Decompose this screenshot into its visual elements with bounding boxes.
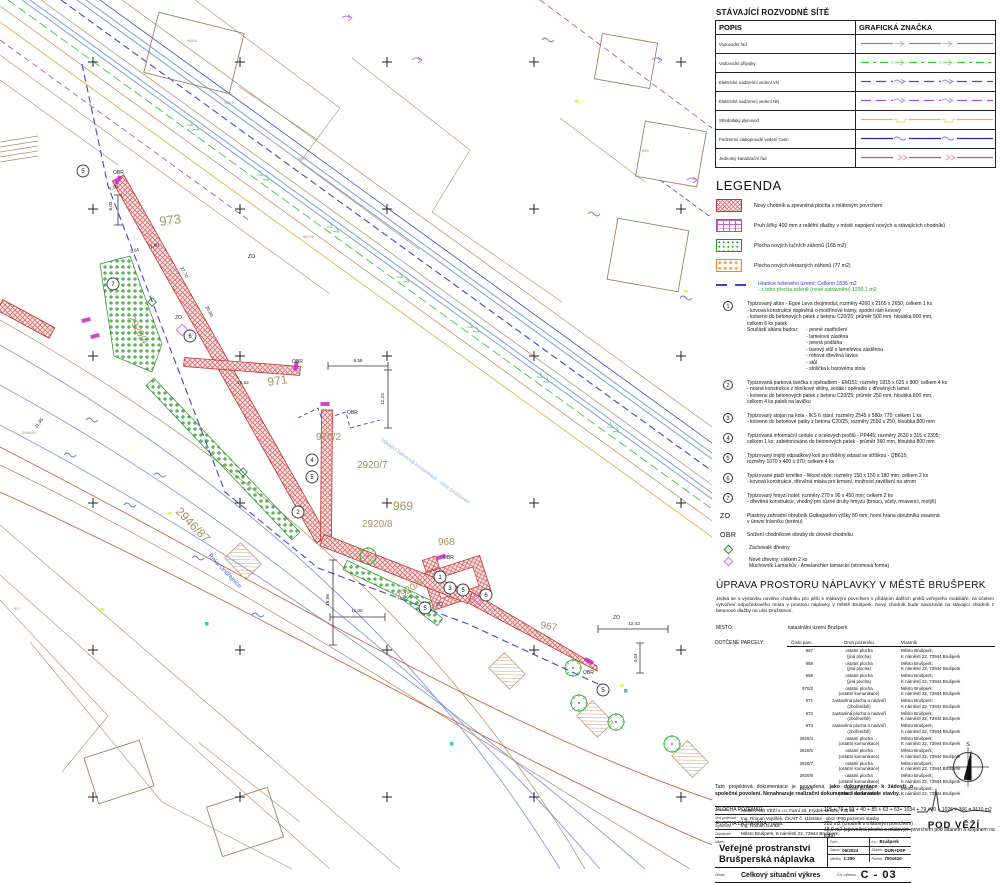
parcels-header: Číslo parc. Druh pozemku Vlastník <box>787 640 995 647</box>
lamp-mark <box>620 684 624 687</box>
legend-items: Nový chodník a zpevněná plocha s mlátový… <box>715 199 997 272</box>
misto-row: MÍSTO: katastrální území Brušperk <box>716 625 997 631</box>
parcel-line <box>195 0 340 108</box>
obr-code: OBR <box>720 532 742 539</box>
map-label: 2920/8 <box>362 519 393 530</box>
grid-cross-icon <box>88 57 98 67</box>
tower-skyline-icon <box>915 788 993 814</box>
grid-cross-icon <box>88 645 98 655</box>
titleblock-field: Měřítko: 1:250 <box>828 855 870 862</box>
titleblock-row: Ved. projektant: Ing. Roman Vojtíšek, ČK… <box>715 815 911 823</box>
network-row: Elektrické nadzemní vedení VN <box>716 73 996 92</box>
tree-icon <box>564 659 582 677</box>
field-value: 700x610 <box>884 856 901 861</box>
map-label: 973 <box>158 211 182 229</box>
parcel-row: 970/2 ostatní plocha (ostatní komunikace… <box>787 686 995 697</box>
title-content-row: Obsah: Celkový situační výkres Čís. výkr… <box>715 868 911 883</box>
parcel-owner: Město Brušperk; K náměstí 22, 73944 Bruš… <box>901 711 995 722</box>
map-item-marker: 4 <box>306 454 318 466</box>
grid-cross-icon <box>88 792 98 802</box>
parcel-type: ostatní plocha (ostatní komunikace) <box>817 686 901 697</box>
map-label: ZO <box>175 315 182 321</box>
dimension-label: 20,00 <box>204 305 214 318</box>
numbered-legend-item: 3 Typizovaný stojan na kola - IKS 6 stán… <box>715 413 997 426</box>
parcel-line <box>432 150 470 212</box>
legend-panel: STÁVAJÍCÍ ROZVODNÉ SÍTĚ POPIS GRAFICKÁ Z… <box>712 0 1000 869</box>
tactile-strip <box>81 317 91 323</box>
tree-center <box>615 721 617 723</box>
stairs <box>672 741 709 778</box>
project-description: Jedná se o výstavbu nového chodníku pro … <box>716 597 994 616</box>
parcel-number: 2920/4 <box>787 736 817 747</box>
field-label: Měřítko: <box>830 857 842 861</box>
sublist-line: - stolička k barovému stolu <box>806 366 883 373</box>
map-label: OBR <box>292 359 303 365</box>
kept-tree-diamond-icon <box>724 544 734 554</box>
project-name-2: Brušperská náplavka <box>719 855 827 866</box>
item-text-line: rozměry 1070 x 400 x 970; celkem 4 ks <box>747 459 983 466</box>
titleblock-field: Datum: 05/2024 <box>828 847 870 854</box>
new-path-areas <box>0 175 597 671</box>
dimension-label: 6,03 <box>108 201 113 210</box>
network-label: Vodovodní přípojky <box>716 54 856 73</box>
network-label: Vodovodní řad <box>716 35 856 54</box>
grid-cross-icon <box>235 351 245 361</box>
parcel-row: 967 ostatní plocha (jiná plocha) Město B… <box>787 648 995 659</box>
field-value: 1:250 <box>844 856 855 861</box>
map-item-marker: 5 <box>597 684 609 696</box>
lamp-mark <box>168 512 172 515</box>
parcel-number: 2920/7 <box>787 761 817 772</box>
parcel-line <box>0 575 330 869</box>
network-line-sample-icon <box>856 130 996 149</box>
hydrant-mark <box>624 689 628 693</box>
item-number-badge: 1 <box>723 301 733 311</box>
dimension-label: 3,54 <box>130 247 140 254</box>
legend-boundary-item: Hranice řešeného území; Celkem 1836 m2 -… <box>716 281 997 293</box>
document-note: Tato projektová dokumentace je provedená… <box>715 784 913 798</box>
network-line-sample-icon <box>856 149 996 168</box>
titleblock-value: Ing. Roman Vojtíšek, ČKAIT č. 1104364 - … <box>741 816 879 821</box>
zo-text-2: v úrovni trávníku (terénu) <box>747 519 983 526</box>
sublist-label: Součástí altánu budou: <box>747 327 798 373</box>
zo-item: ZO Plastový zahradní obrubník Guttagarde… <box>715 513 997 526</box>
grid-cross-icon <box>529 351 539 361</box>
map-label: 985/3 <box>224 100 235 105</box>
power-arrow <box>342 15 352 21</box>
water-squiggle <box>588 212 600 216</box>
map-label: OBR <box>113 170 124 176</box>
field-label: k.ú.: <box>872 840 878 844</box>
legend-item-text: Pruh šířky 400 mm z reliéfní dlažby v mí… <box>754 223 945 229</box>
parcel-owner: Město Brušperk; K náměstí 22, 73944 Bruš… <box>901 673 995 684</box>
titleblock-field: k.ú.: Brušperk <box>870 838 912 845</box>
parcels-col1: Číslo parc. <box>787 640 817 645</box>
networks-table: POPIS GRAFICKÁ ZNAČKA Vodovodní řad Vodo… <box>715 20 996 168</box>
titleblock-field-row: Datum: 05/2024Stupeň: DUR+DSP <box>828 847 911 855</box>
water-squiggle <box>124 503 136 507</box>
titleblock-field-row: Měřítko: 1:250Formát: 700x610 <box>828 855 911 862</box>
map-item-marker: 6 <box>480 589 492 601</box>
network-row: Jednotný kanalizační řad <box>716 149 996 168</box>
parcels-col3: Vlastník <box>901 640 995 645</box>
parcel-row: 968 ostatní plocha (jiná plocha) Město B… <box>787 661 995 672</box>
grid-cross-icon <box>382 57 392 67</box>
networks-col-znacka: GRAFICKÁ ZNAČKA <box>856 21 996 35</box>
grid-cross-icon <box>676 57 686 67</box>
item-number-badge: 3 <box>723 413 733 423</box>
grid-cross-icon <box>88 498 98 508</box>
parcel-type: ostatní plocha (ostatní komunikace) <box>817 761 901 772</box>
tactile-strip <box>90 333 100 339</box>
boundary-line-sample <box>716 284 746 286</box>
parcel-type: ostatní plocha (ostatní komunikace) <box>817 736 901 747</box>
tree-center <box>671 743 673 745</box>
grid-cross-icon <box>529 498 539 508</box>
tree-icon <box>607 713 625 731</box>
item-number-badge: 2 <box>723 380 733 390</box>
power-arrow <box>687 177 697 183</box>
map-item-marker: 1 <box>434 571 446 583</box>
network-row: Elektrické nadzemní vedení NN <box>716 92 996 111</box>
dimension-label: 11,00 <box>351 608 363 613</box>
parcel-row: 971 zastavěná plocha a nádvoří (zbořeniš… <box>787 698 995 709</box>
titleblock-value: Město Brušperk, K náměstí 22, 73944 Bruš… <box>741 831 838 836</box>
map-label: 2946/87 <box>173 504 213 545</box>
network-row: Vodovodní přípojky <box>716 54 996 73</box>
tactile-strip <box>321 402 330 406</box>
parcel-owner: Město Brušperk; K náměstí 22, 73944 Bruš… <box>901 686 995 697</box>
networks-col-popis: POPIS <box>716 21 856 35</box>
field-label: Paré: <box>830 840 838 844</box>
map-label: 965 <box>642 148 649 153</box>
grid-cross-icon <box>676 645 686 655</box>
network-label: Elektrické nadzemní vedení NN <box>716 92 856 111</box>
parcel-owner: Město Brušperk; K náměstí 22, 73944 Bruš… <box>901 661 995 672</box>
grid-cross-icon <box>676 498 686 508</box>
item-text-line: celkem 1 ks; zabetonováno do betonových … <box>747 439 983 446</box>
parcels-col2: Druh pozemku <box>817 640 901 645</box>
network-row: Vodovodní řad <box>716 35 996 54</box>
power-arrow <box>652 57 662 63</box>
titleblock-field-row: Paré: k.ú.: Brušperk <box>828 838 911 846</box>
grid-cross-icon <box>676 204 686 214</box>
company-logo: POD VĚŽÍ <box>908 788 1000 831</box>
new-tree-diamond-icon <box>724 556 734 566</box>
parcel-type: ostatní plocha (ostatní komunikace) <box>817 773 901 784</box>
map-item-marker: 2 <box>292 506 304 518</box>
site-boundary-dashed <box>82 64 598 684</box>
item-number-badge: 5 <box>723 453 733 463</box>
numbered-legend-item: 7 Typizovaný hmyzí hotel; rozměry 270 x … <box>715 493 997 506</box>
field-label: Datum: <box>830 848 840 852</box>
network-line-sample-icon <box>856 111 996 130</box>
map-item-marker: 3 <box>444 582 456 594</box>
grid-cross-icon <box>382 498 392 508</box>
obr-item: OBR Snížení chodníkové obruby do úrovně … <box>715 532 997 539</box>
parcel-type: ostatní plocha (ostatní komunikace) <box>817 748 901 759</box>
parcel-owner: Město Brušperk; K náměstí 22, 73944 Bruš… <box>901 648 995 659</box>
map-label: 2946/90 <box>22 430 37 435</box>
map-label: 987/4 <box>303 234 314 239</box>
parcel-number: 972 <box>787 711 817 722</box>
legend-swatch-icon <box>716 239 742 252</box>
building-outline <box>607 218 689 292</box>
map-label: 927 <box>14 606 21 611</box>
map-label: OBR <box>443 555 454 561</box>
network-row: Středotlaký plynovod <box>716 111 996 130</box>
river-lines <box>0 320 712 869</box>
grid-cross-icon <box>676 792 686 802</box>
parcel-line <box>352 58 470 150</box>
drawing-number-label: Čís. výkresu: <box>837 873 857 877</box>
map-item-marker: 5 <box>457 584 469 596</box>
hydrant-mark <box>205 622 209 626</box>
field-label: Stupeň: <box>872 848 883 852</box>
field-value: Brušperk <box>880 839 899 844</box>
dimension-label: 4,04 <box>633 653 638 662</box>
bank-steps <box>0 136 38 162</box>
grid-cross-icon <box>88 351 98 361</box>
new-trees-item: Nové dřeviny; celkem 2 ks Muchovník Lama… <box>715 557 997 570</box>
power-arrow <box>412 57 422 63</box>
boundary-text-2: - z toho plocha zeleně (nové zatravnění)… <box>758 287 877 293</box>
network-line-sample-icon <box>856 92 996 111</box>
flowerbed <box>100 256 162 372</box>
dimension-label: 12,24 <box>380 393 385 405</box>
parcel-owner: Město Brušperk; K náměstí 22, 73944 Bruš… <box>901 723 995 734</box>
titleblock-label: Ved. projektant: <box>715 816 741 820</box>
grid-cross-icon <box>235 645 245 655</box>
kept-trees-text: Zachovalé dřeviny <box>749 545 790 553</box>
map-label: Stávající betonová komunikace - ulice Dr… <box>379 437 471 506</box>
water-squiggle <box>64 453 76 457</box>
misto-value: katastrální území Brušperk <box>788 625 847 631</box>
tree-center <box>578 702 580 704</box>
kept-trees-item: Zachovalé dřeviny <box>715 545 997 553</box>
field-label: Formát: <box>872 857 883 861</box>
item-number-badge: 6 <box>723 473 733 483</box>
legend-swatch-icon <box>716 259 742 272</box>
numbered-legend-item: 5 Typizovaný trojitý odpadkový koš pro t… <box>715 453 997 466</box>
title-block: Zhotovitel: Ateliér POD VĚŽÍ s.r.o, Farn… <box>715 806 911 883</box>
titleblock-value: Ateliér POD VĚŽÍ s.r.o, Farní 20, Frýdek… <box>741 808 855 813</box>
buildings <box>84 12 706 856</box>
tree-icon <box>570 694 588 712</box>
section-title: ÚPRAVA PROSTORU NÁPLAVKY V MĚSTĚ BRUŠPER… <box>716 580 997 591</box>
titleblock-value: Ing. Roman Guňka <box>741 823 780 828</box>
legend-item: Pruh šířky 400 mm z reliéfní dlažby v mí… <box>716 219 997 232</box>
obsah-label: Obsah: <box>715 873 741 877</box>
network-line-sample-icon <box>856 54 996 73</box>
item-text-line: - dřevěná konstrukce, vhodný pro různé d… <box>747 499 983 506</box>
titleblock-label: Vypracoval: <box>715 824 741 828</box>
parcel-line <box>162 802 292 869</box>
tree-center <box>367 555 369 557</box>
map-label: 967 <box>539 620 558 634</box>
legend-item: Plocha nových lučních záhonů (165 m2) <box>716 239 997 252</box>
titleblock-field: Formát: 700x610 <box>870 855 912 862</box>
parcel-line <box>560 118 645 182</box>
dimension-label: 9,59 <box>354 358 363 363</box>
map-label: 968 <box>438 537 455 548</box>
parcel-line <box>300 108 340 162</box>
dimension-label: 11,95 <box>33 417 44 429</box>
grid-cross-icon <box>529 57 539 67</box>
titleblock-label: Zhotovitel: <box>715 808 741 812</box>
new-trees-text-2: Muchovník Lamarkův - Amelanchier lamarck… <box>749 563 889 570</box>
titleblock-row: Zhotovitel: Ateliér POD VĚŽÍ s.r.o, Farn… <box>715 807 911 815</box>
network-label: Středotlaký plynovod <box>716 111 856 130</box>
titleblock-field: Paré: <box>828 838 870 845</box>
parcel-type: zastavěná plocha a nádvoří (zbořeniště) <box>817 711 901 722</box>
lamp-mark <box>100 608 104 611</box>
hydrant-mark <box>450 742 454 746</box>
parcel-type: ostatní plocha (jiná plocha) <box>817 673 901 684</box>
stairs <box>577 701 614 738</box>
parcel-number: 969 <box>787 673 817 684</box>
misto-label: MÍSTO: <box>716 625 788 631</box>
drawing-sheet: 572456135655 973971970/22920/79692920/89… <box>0 0 1000 869</box>
map-label: 2920/7 <box>357 460 388 471</box>
grid-cross-icon <box>382 792 392 802</box>
numbered-legend-item: 2 Typizovaná parková lavička s opěradlem… <box>715 380 997 406</box>
water-squiggle <box>86 418 98 422</box>
item-text-line: - kotveno do betonové patky z betonu C20… <box>747 419 983 426</box>
field-value: DUR+DSP <box>885 848 906 853</box>
parcel-number: 967 <box>787 648 817 659</box>
parcel-type: zastavěná plocha a nádvoří (zbořeniště) <box>817 698 901 709</box>
map-label: 987/2 <box>298 156 309 161</box>
parcel-row: 972 zastavěná plocha a nádvoří (zbořeniš… <box>787 711 995 722</box>
map-label: ZO <box>436 602 443 608</box>
map-label: ZO <box>248 254 255 260</box>
new-path <box>0 300 55 339</box>
item-number-badge: 7 <box>723 493 733 503</box>
tree-icon <box>359 547 377 565</box>
parcel-type: ostatní plocha (jiná plocha) <box>817 648 901 659</box>
legend-title: LEGENDA <box>716 178 997 193</box>
tree-icon <box>663 735 681 753</box>
map-label: 969 <box>393 499 413 513</box>
logo-text: POD VĚŽÍ <box>908 820 1000 831</box>
parcel-number: 2920/5 <box>787 748 817 759</box>
numbered-legend-items: 1 Typizovaný altán - Egoe Leva dvojmodul… <box>715 301 997 506</box>
parcel-row: 973 zastavěná plocha a nádvoří (zbořeniš… <box>787 723 995 734</box>
parcel-row: 969 ostatní plocha (jiná plocha) Město B… <box>787 673 995 684</box>
boundary-detail-dashed <box>298 408 380 428</box>
network-line-sample-icon <box>856 73 996 92</box>
grid-cross-icon <box>88 204 98 214</box>
grid-crosses <box>88 57 686 802</box>
north-arrow: S <box>944 740 992 795</box>
legend-swatch-icon <box>716 199 742 212</box>
map-item-marker: 5 <box>77 165 89 177</box>
legend-item: Plocha nových okrasných záhonů (77 m2) <box>716 259 997 272</box>
site-plan-svg: 572456135655 973971970/22920/79692920/89… <box>0 0 712 869</box>
titleblock-field: Stupeň: DUR+DSP <box>870 847 912 854</box>
numbered-legend-item: 4 Typizovaná informační cedule z ocelový… <box>715 433 997 446</box>
lamp-mark <box>575 100 579 103</box>
numbered-legend-item: 1 Typizovaný altán - Egoe Leva dvojmodul… <box>715 301 997 373</box>
parcels-label: DOTČENÉ PARCELY: <box>715 640 787 797</box>
tree-center <box>572 667 574 669</box>
network-row: Podzemní slaboproudé vedení Cetin <box>716 130 996 149</box>
map-label: ZO <box>613 615 620 621</box>
zo-code: ZO <box>720 513 742 526</box>
new-path <box>321 410 333 540</box>
obr-text: Snížení chodníkové obruby do úrovně chod… <box>747 532 983 539</box>
drawing-number: C - 03 <box>861 869 897 881</box>
site-plan-map: 572456135655 973971970/22920/79692920/89… <box>0 0 712 869</box>
item-text-line: celkem 4 ks patek na lavičku <box>747 399 983 406</box>
network-line-sample-icon <box>856 35 996 54</box>
legend-item-text: Nový chodník a zpevněná plocha s mlátový… <box>754 203 882 209</box>
field-value: 05/2024 <box>842 848 858 853</box>
dimension-label: 16,56 <box>325 594 330 606</box>
parcel-line <box>432 212 562 302</box>
parcel-number: 968 <box>787 661 817 672</box>
grid-cross-icon <box>529 204 539 214</box>
water-squiggle <box>154 473 166 477</box>
network-label: Jednotný kanalizační řad <box>716 149 856 168</box>
parcel-line <box>62 716 108 772</box>
water-squiggle <box>680 296 692 300</box>
grid-cross-icon <box>529 645 539 655</box>
network-label: Elektrické nadzemní vedení VN <box>716 73 856 92</box>
water-squiggle <box>542 38 554 42</box>
grid-cross-icon <box>235 792 245 802</box>
building-outline <box>207 787 284 856</box>
dimension-label: 19,52 <box>237 380 249 385</box>
item-text-line: - kovová konstrukce, dřevěná miska pro k… <box>747 479 983 486</box>
parcel-type: zastavěná plocha a nádvoří (zbořeniště) <box>817 723 901 734</box>
map-label: OBR <box>583 670 594 676</box>
map-label: OBR <box>347 410 358 416</box>
map-item-marker: 5 <box>419 602 431 614</box>
grid-cross-icon <box>382 351 392 361</box>
titleblock-label: Objednatel: <box>715 832 741 836</box>
stairs <box>489 653 526 690</box>
titleblock-row: Vypracoval: Ing. Roman Guňka <box>715 823 911 831</box>
building-outline <box>636 121 707 187</box>
map-item-marker: 5 <box>306 471 318 483</box>
parcel-number: 2920/8 <box>787 773 817 784</box>
network-label: Podzemní slaboproudé vedení Cetin <box>716 130 856 149</box>
map-label: 970/2 <box>316 432 341 443</box>
map-item-marker: 7 <box>107 278 119 290</box>
legend-item: Nový chodník a zpevněná plocha s mlátový… <box>716 199 997 212</box>
dimension-label: 12,43 <box>628 621 640 626</box>
parcel-line <box>30 642 162 802</box>
item-number-badge: 4 <box>723 433 733 443</box>
title-name-row: Název: Veřejné prostranství Brušperská n… <box>715 838 911 868</box>
legend-swatch-icon <box>716 219 742 232</box>
parcel-line <box>0 600 108 716</box>
parcel-number: 973 <box>787 723 817 734</box>
parcel-type: ostatní plocha (jiná plocha) <box>817 661 901 672</box>
legend-item-text: Plocha nových okrasných záhonů (77 m2) <box>754 263 851 269</box>
map-label: 971 <box>266 372 288 389</box>
parcel-line <box>198 742 300 822</box>
grid-cross-icon <box>235 204 245 214</box>
parcel-owner: Město Brušperk; K náměstí 22, 73944 Bruš… <box>901 698 995 709</box>
map-item-marker: 6 <box>184 330 196 342</box>
legend-item-text: Plocha nových lučních záhonů (165 m2) <box>754 243 846 249</box>
titleblock-row: Objednatel: Město Brušperk, K náměstí 22… <box>715 830 911 838</box>
drawing-title: Celkový situační výkres <box>741 872 837 879</box>
parcel-number: 970/2 <box>787 686 817 697</box>
